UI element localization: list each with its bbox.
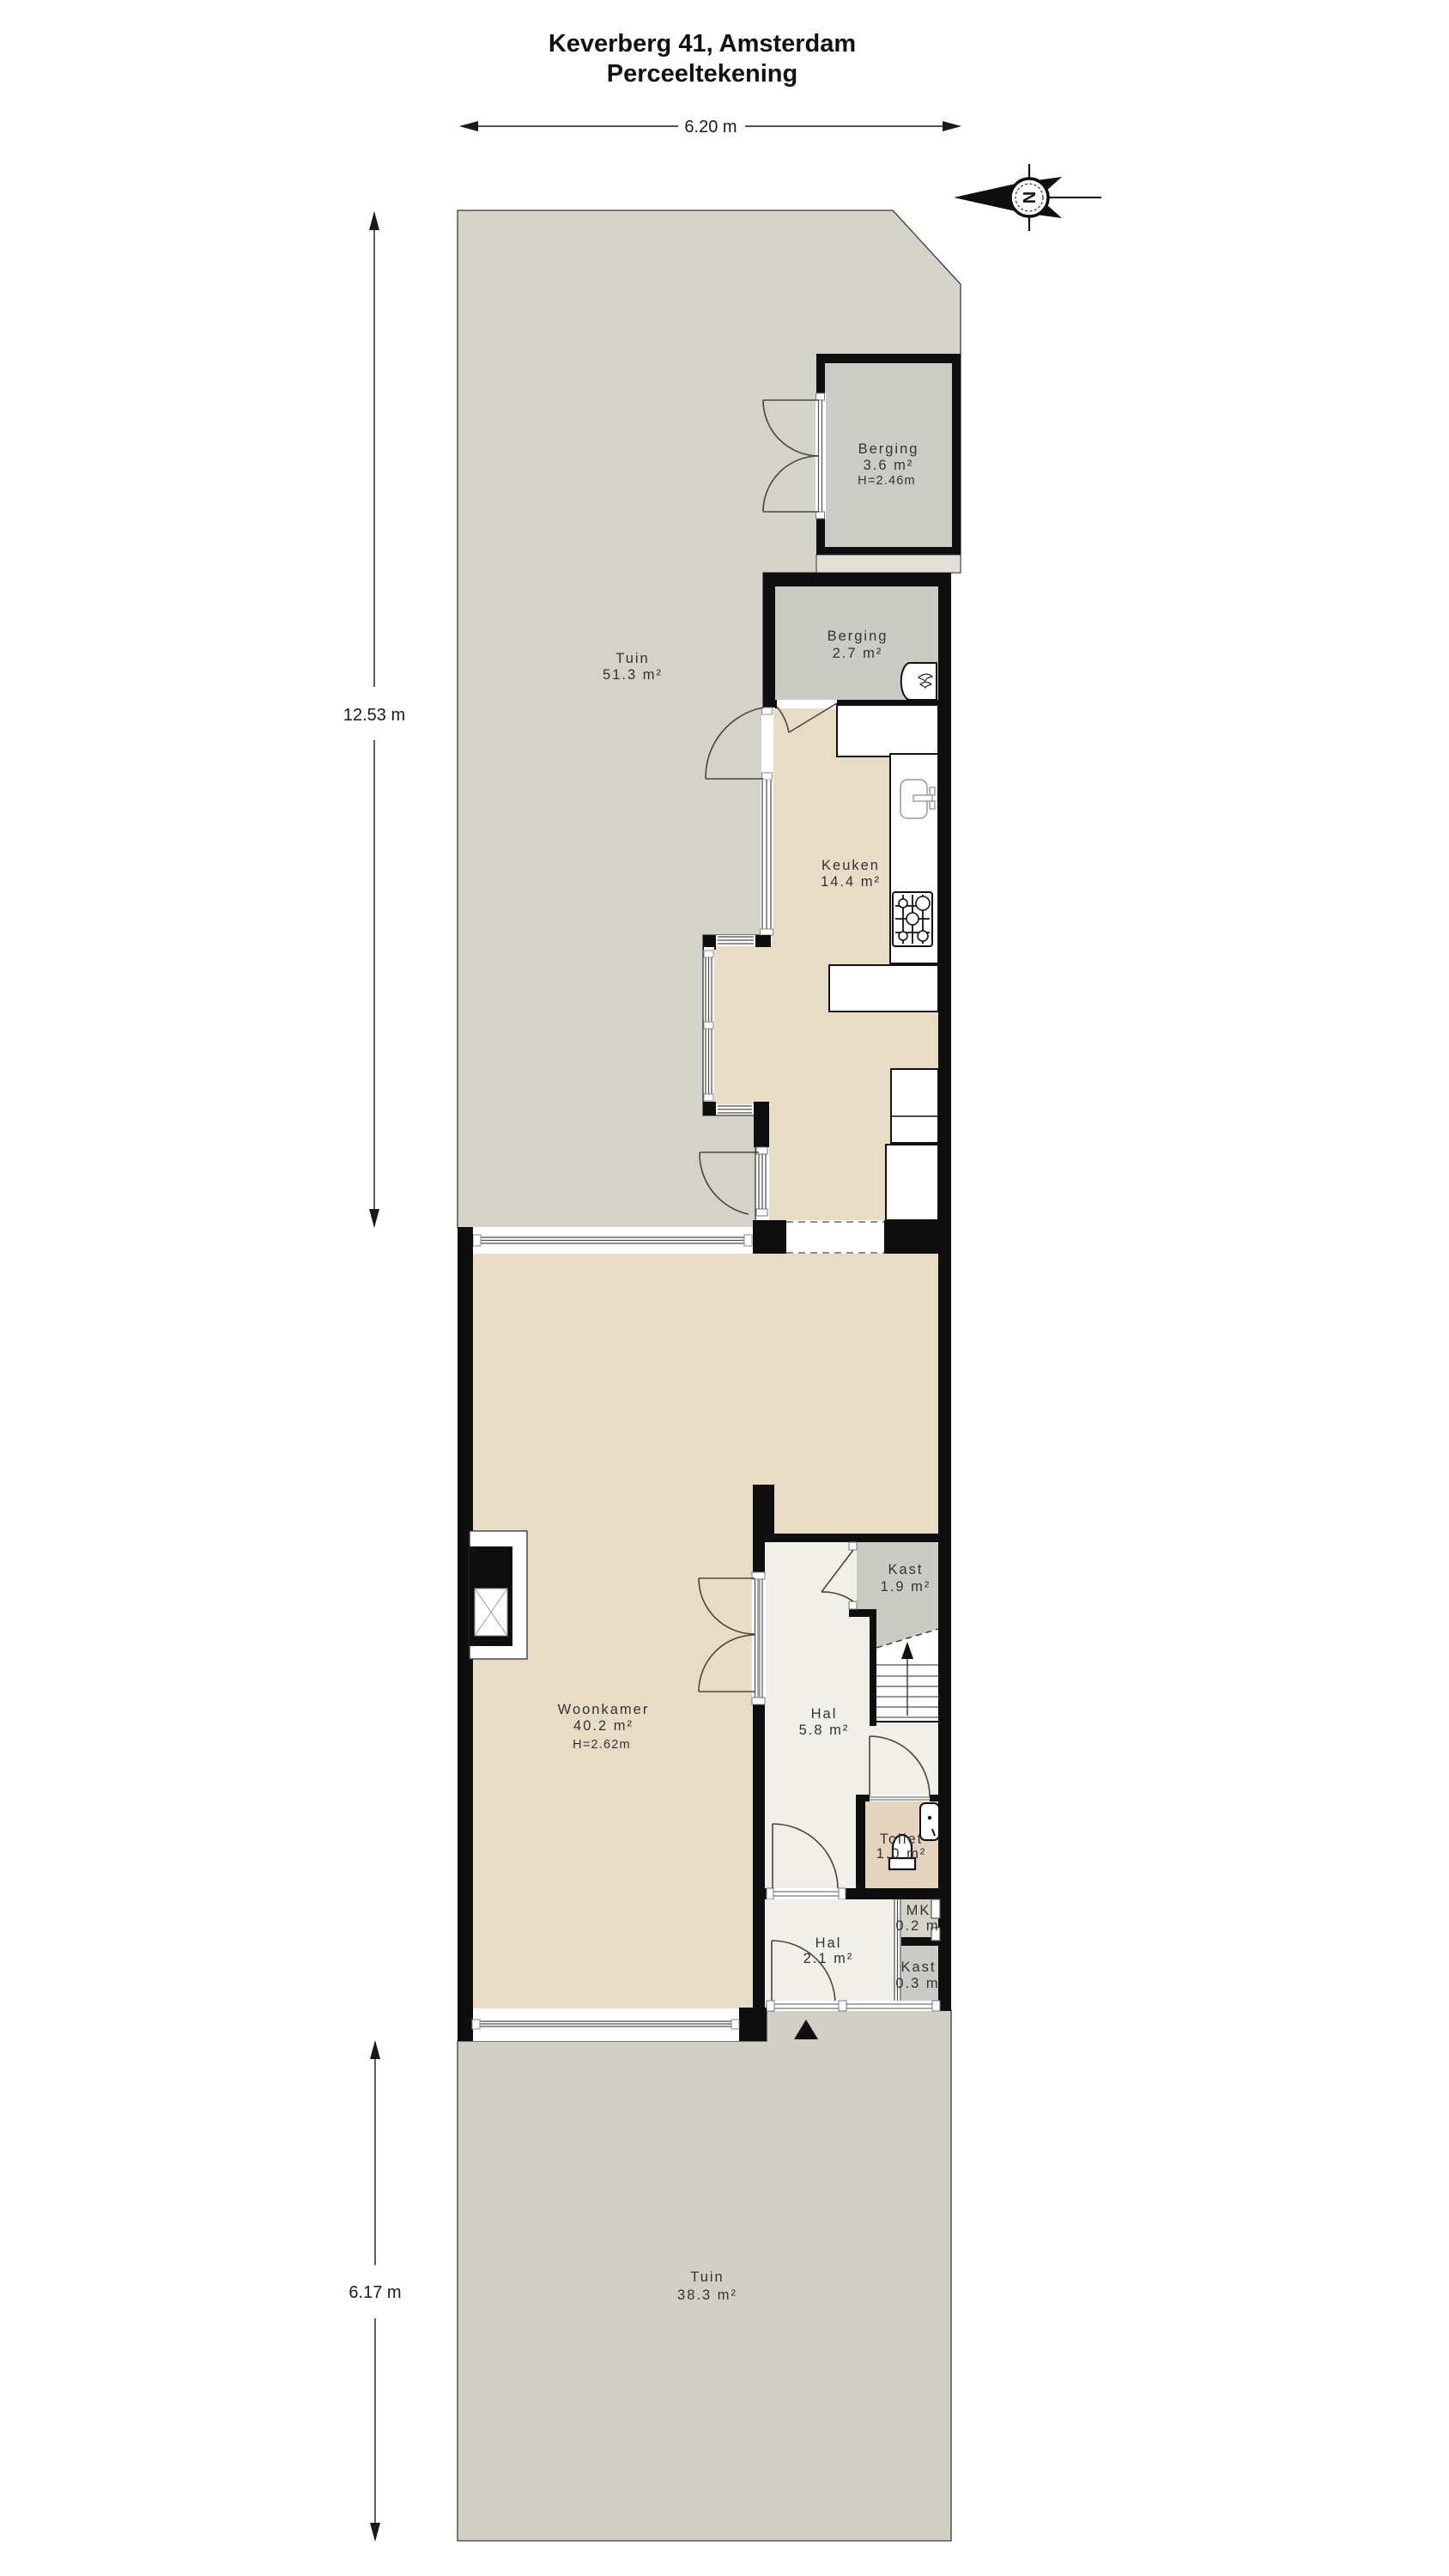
svg-text:40.2 m²: 40.2 m² bbox=[573, 1718, 634, 1734]
svg-text:3.6 m²: 3.6 m² bbox=[864, 458, 914, 473]
svg-text:Tuin: Tuin bbox=[615, 651, 650, 666]
svg-text:Tuin: Tuin bbox=[690, 2269, 724, 2285]
svg-text:6.17 m: 6.17 m bbox=[349, 2283, 401, 2302]
svg-text:Perceeltekening: Perceeltekening bbox=[607, 60, 797, 88]
svg-text:0.3 m: 0.3 m bbox=[895, 1976, 939, 1991]
svg-text:Berging: Berging bbox=[828, 629, 888, 644]
svg-text:H=2.62m: H=2.62m bbox=[573, 1738, 631, 1752]
svg-text:38.3 m²: 38.3 m² bbox=[677, 2287, 737, 2303]
svg-text:Kast: Kast bbox=[900, 1959, 936, 1975]
svg-text:1.9 m²: 1.9 m² bbox=[881, 1579, 931, 1595]
svg-text:5.8 m²: 5.8 m² bbox=[799, 1722, 850, 1738]
svg-text:MK: MK bbox=[906, 1903, 931, 1918]
svg-text:Keuken: Keuken bbox=[822, 858, 880, 873]
svg-text:N: N bbox=[1021, 191, 1040, 204]
svg-text:Woonkamer: Woonkamer bbox=[558, 1702, 650, 1717]
svg-text:1.0 m²: 1.0 m² bbox=[876, 1846, 927, 1862]
svg-text:2.1 m²: 2.1 m² bbox=[803, 1951, 854, 1966]
svg-text:Kast: Kast bbox=[888, 1562, 923, 1577]
svg-text:Hal: Hal bbox=[811, 1706, 838, 1722]
svg-text:14.4 m²: 14.4 m² bbox=[821, 874, 881, 890]
svg-text:Toilet: Toilet bbox=[880, 1832, 924, 1847]
svg-text:51.3 m²: 51.3 m² bbox=[603, 667, 663, 683]
svg-text:6.20 m: 6.20 m bbox=[684, 118, 737, 137]
svg-text:2.7 m²: 2.7 m² bbox=[833, 646, 883, 661]
svg-text:H=2.46m: H=2.46m bbox=[858, 474, 916, 488]
svg-text:Berging: Berging bbox=[858, 441, 919, 457]
svg-text:0.2 m: 0.2 m bbox=[895, 1918, 939, 1934]
svg-text:Hal: Hal bbox=[815, 1935, 842, 1951]
svg-text:Keverberg 41, Amsterdam: Keverberg 41, Amsterdam bbox=[549, 30, 856, 58]
svg-text:12.53 m: 12.53 m bbox=[343, 706, 405, 725]
